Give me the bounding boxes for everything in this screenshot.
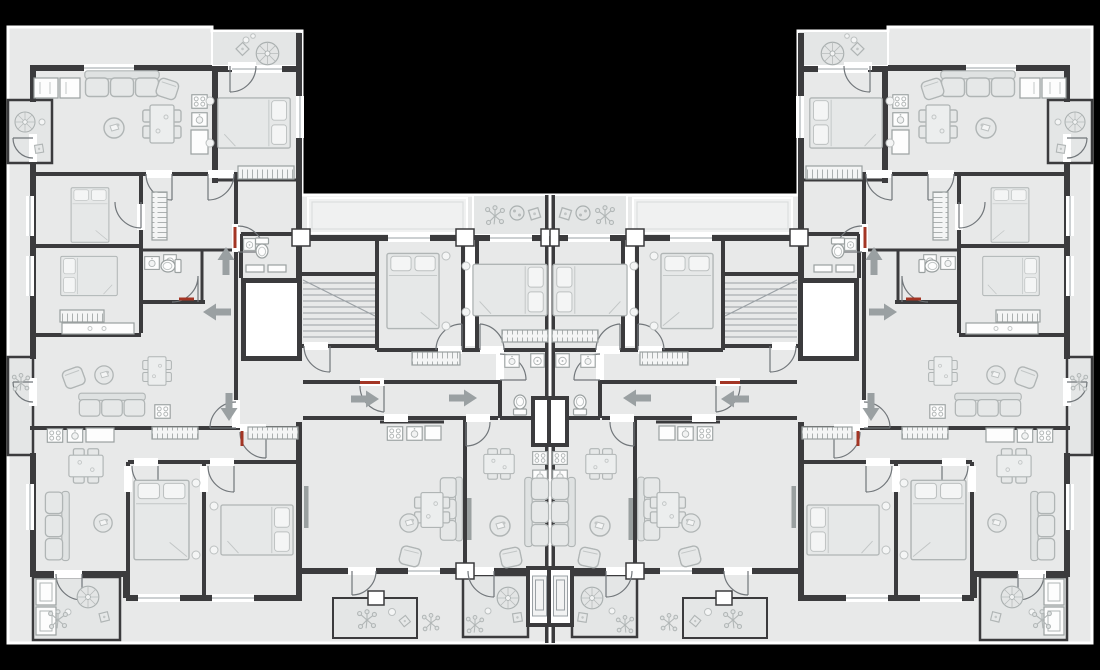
floor-plan-page [0, 0, 1100, 670]
floor-plan-canvas [0, 0, 1100, 670]
